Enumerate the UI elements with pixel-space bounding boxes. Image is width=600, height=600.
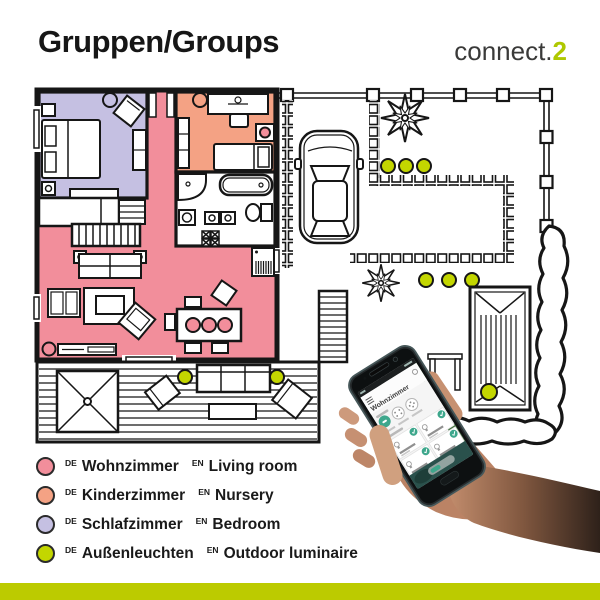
deck <box>37 362 319 442</box>
legend-item-bedroom: DE Schlafzimmer EN Bedroom <box>36 510 358 539</box>
legend-name-en: Nursery <box>215 487 274 505</box>
footer-accent-bar <box>0 583 600 600</box>
outdoor-luminaire-gate <box>481 384 497 400</box>
legend-item-outdoor-luminaire: DE Außenleuchten EN Outdoor luminaire <box>36 539 358 568</box>
garden-gate <box>470 287 530 410</box>
legend-color-swatch <box>36 515 55 534</box>
lang-tag-de: DE <box>65 487 77 497</box>
legend-name-de: Kinderzimmer <box>82 487 185 505</box>
fingertip-2 <box>342 426 369 450</box>
lang-tag-de: DE <box>65 458 77 468</box>
legend-item-nursery: DE Kinderzimmer EN Nursery <box>36 481 358 510</box>
legend-color-swatch <box>36 457 55 476</box>
lang-tag-en: EN <box>196 516 208 526</box>
legend: DE Wohnzimmer EN Living room DE Kinderzi… <box>36 452 358 568</box>
legend-item-living-room: DE Wohnzimmer EN Living room <box>36 452 358 481</box>
patio-umbrella <box>57 371 118 432</box>
garden-plant <box>381 94 429 142</box>
legend-name-de: Schlafzimmer <box>82 516 183 534</box>
outdoor-sofa <box>197 365 270 392</box>
outdoor-luminaire-deck-2 <box>270 370 284 384</box>
outdoor-luminaire-deck <box>178 370 192 384</box>
legend-color-swatch <box>36 486 55 505</box>
legend-name-en: Outdoor luminaire <box>224 545 358 563</box>
lang-tag-de: DE <box>65 516 77 526</box>
house <box>32 90 281 365</box>
lang-tag-de: DE <box>65 545 77 555</box>
product-image: Gruppen/Groups connect.2 <box>0 0 600 600</box>
lang-tag-en: EN <box>198 487 210 497</box>
car <box>295 131 363 243</box>
legend-name-de: Außenleuchten <box>82 545 194 563</box>
garden-plant-2 <box>362 264 399 301</box>
legend-name-en: Bedroom <box>212 516 280 534</box>
garden-steps <box>319 291 347 362</box>
fingertip <box>337 405 362 427</box>
lang-tag-en: EN <box>192 458 204 468</box>
legend-name-en: Living room <box>209 458 298 476</box>
legend-name-de: Wohnzimmer <box>82 458 179 476</box>
lang-tag-en: EN <box>207 545 219 555</box>
legend-color-swatch <box>36 544 55 563</box>
deck-table <box>209 404 256 419</box>
